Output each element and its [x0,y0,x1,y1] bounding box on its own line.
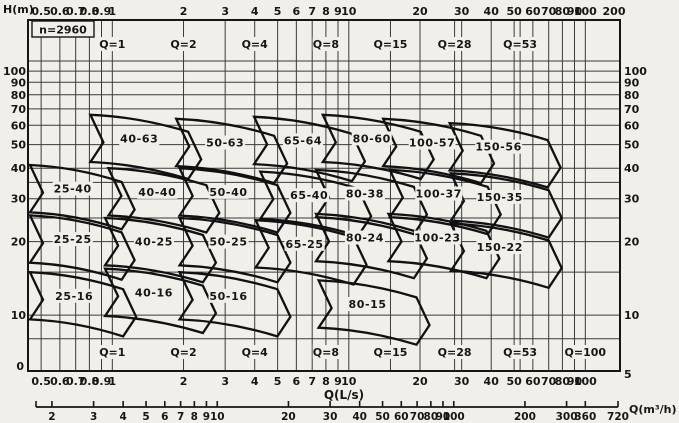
region-label-80-60: 80-60 [353,132,391,145]
region-label-25-40: 25-40 [54,183,92,196]
tick2-360: 360 [574,411,596,423]
q-marker-top-1: Q=1 [99,38,125,51]
tick-bottom-100: 100 [574,375,597,388]
tick-right-10: 10 [624,309,640,322]
tick-left-20: 20 [11,236,27,249]
region-label-80-24: 80-24 [346,232,384,245]
region-label-40-40: 40-40 [138,186,176,199]
q-marker-bottom-53: Q=53 [503,346,537,359]
x-axis-label: Q(L/s) [324,388,364,402]
tick-top-30: 30 [454,5,470,18]
tick-left-70: 70 [11,103,27,116]
tick2-5: 5 [142,411,149,423]
q-marker-bottom-15: Q=15 [374,346,408,359]
tick2-720: 720 [607,411,629,423]
region-label-100-23: 100-23 [414,232,460,245]
tick-right-70: 70 [624,103,640,116]
tick-top-1: 1 [108,5,116,18]
tick-bottom-1: 1 [108,375,116,388]
tick-top-50: 50 [506,5,522,18]
tick-top-40: 40 [484,5,500,18]
tick-left-40: 40 [11,162,27,175]
tick2-60: 60 [394,411,409,423]
chart-canvas: 40-6350-6365-6480-60100-57150-5625-4040-… [0,0,679,423]
region-label-100-37: 100-37 [416,188,462,201]
tick-top-6: 6 [293,5,301,18]
q-marker-bottom-100: Q=100 [565,346,607,359]
tick-top-3: 3 [221,5,229,18]
pump-selection-chart: 40-6350-6365-6480-60100-57150-5625-4040-… [0,0,679,423]
q-marker-bottom-1: Q=1 [99,346,125,359]
tick-top-200: 200 [603,5,626,18]
region-label-100-57: 100-57 [409,136,455,149]
region-label-40-25: 40-25 [135,236,173,249]
tick2-40: 40 [352,411,367,423]
q-marker-top-2: Q=2 [170,38,196,51]
region-label-150-56: 150-56 [475,141,521,154]
tick2-3: 3 [90,411,97,423]
tick2-7: 7 [177,411,184,423]
region-label-80-15: 80-15 [348,298,386,311]
tick2-70: 70 [410,411,425,423]
tick-top-20: 20 [412,5,428,18]
tick-right-60: 60 [624,119,640,132]
region-label-40-63: 40-63 [120,132,158,145]
tick-bottom-40: 40 [484,375,500,388]
tick-bottom-8: 8 [322,375,330,388]
x2-axis-label: Q(m³/h) [629,403,677,416]
region-label-65-40: 65-40 [290,189,328,202]
tick-bottom-3: 3 [221,375,229,388]
y-axis-label: H(m) [3,3,34,16]
tick-right-100: 100 [624,65,647,78]
q-marker-bottom-2: Q=2 [170,346,196,359]
region-label-50-63: 50-63 [206,136,244,149]
tick2-20: 20 [281,411,296,423]
tick2-100: 100 [443,411,465,423]
tick-bottom-30: 30 [454,375,470,388]
region-label-50-25: 50-25 [209,236,247,249]
q-marker-top-8: Q=8 [313,38,339,51]
tick2-4: 4 [119,411,126,423]
corner-right-label: 5 [624,368,632,381]
tick-right-90: 90 [624,76,640,89]
tick2-10: 10 [210,411,225,423]
q-marker-bottom-28: Q=28 [438,346,472,359]
tick-top-5: 5 [274,5,282,18]
tick2-2: 2 [48,411,55,423]
region-label-50-16: 50-16 [209,290,247,303]
region-label-25-16: 25-16 [55,290,93,303]
q-marker-bottom-8: Q=8 [313,346,339,359]
tick-left-10: 10 [11,309,27,322]
region-label-150-22: 150-22 [477,241,523,254]
tick-bottom-7: 7 [308,375,316,388]
tick-right-80: 80 [624,89,640,102]
tick-bottom-5: 5 [274,375,282,388]
tick-top-60: 60 [525,5,541,18]
tick-right-50: 50 [624,139,640,152]
tick-top-4: 4 [251,5,259,18]
tick-bottom-0.5: 0.5 [31,375,51,388]
region-label-80-38: 80-38 [346,188,384,201]
tick2-8: 8 [191,411,198,423]
tick-bottom-2: 2 [180,375,188,388]
q-marker-top-15: Q=15 [374,38,408,51]
q-marker-top-53: Q=53 [503,38,537,51]
region-label-25-25: 25-25 [54,233,92,246]
tick-top-10: 10 [341,5,357,18]
corner-left-label: 0 [16,360,24,373]
region-label-150-35: 150-35 [477,191,523,204]
region-label-50-40: 50-40 [209,186,247,199]
tick2-200: 200 [514,411,536,423]
tick-top-0.5: 0.5 [31,5,51,18]
tick-bottom-10: 10 [341,375,357,388]
tick-right-30: 30 [624,193,640,206]
tick-bottom-60: 60 [525,375,541,388]
tick-bottom-6: 6 [293,375,301,388]
tick2-30: 30 [323,411,338,423]
tick-top-7: 7 [308,5,316,18]
tick-left-60: 60 [11,119,27,132]
tick-bottom-50: 50 [506,375,522,388]
tick-left-100: 100 [3,65,26,78]
tick-top-100: 100 [574,5,597,18]
tick2-6: 6 [161,411,168,423]
tick-bottom-20: 20 [412,375,428,388]
tick-right-20: 20 [624,236,640,249]
tick2-50: 50 [375,411,390,423]
tick-left-50: 50 [11,139,27,152]
tick-top-8: 8 [322,5,330,18]
q-marker-bottom-4: Q=4 [242,346,269,359]
tick-bottom-4: 4 [251,375,259,388]
q-marker-top-28: Q=28 [438,38,472,51]
q-marker-top-4: Q=4 [242,38,269,51]
speed-label: n=2960 [39,24,87,37]
region-label-65-64: 65-64 [284,134,322,147]
region-label-40-16: 40-16 [135,286,173,299]
tick-left-30: 30 [11,193,27,206]
speed-box: n=2960 [32,21,94,37]
tick-left-80: 80 [11,89,27,102]
region-label-65-25: 65-25 [285,238,323,251]
tick-top-2: 2 [180,5,188,18]
tick-left-90: 90 [11,76,27,89]
tick-right-40: 40 [624,162,640,175]
